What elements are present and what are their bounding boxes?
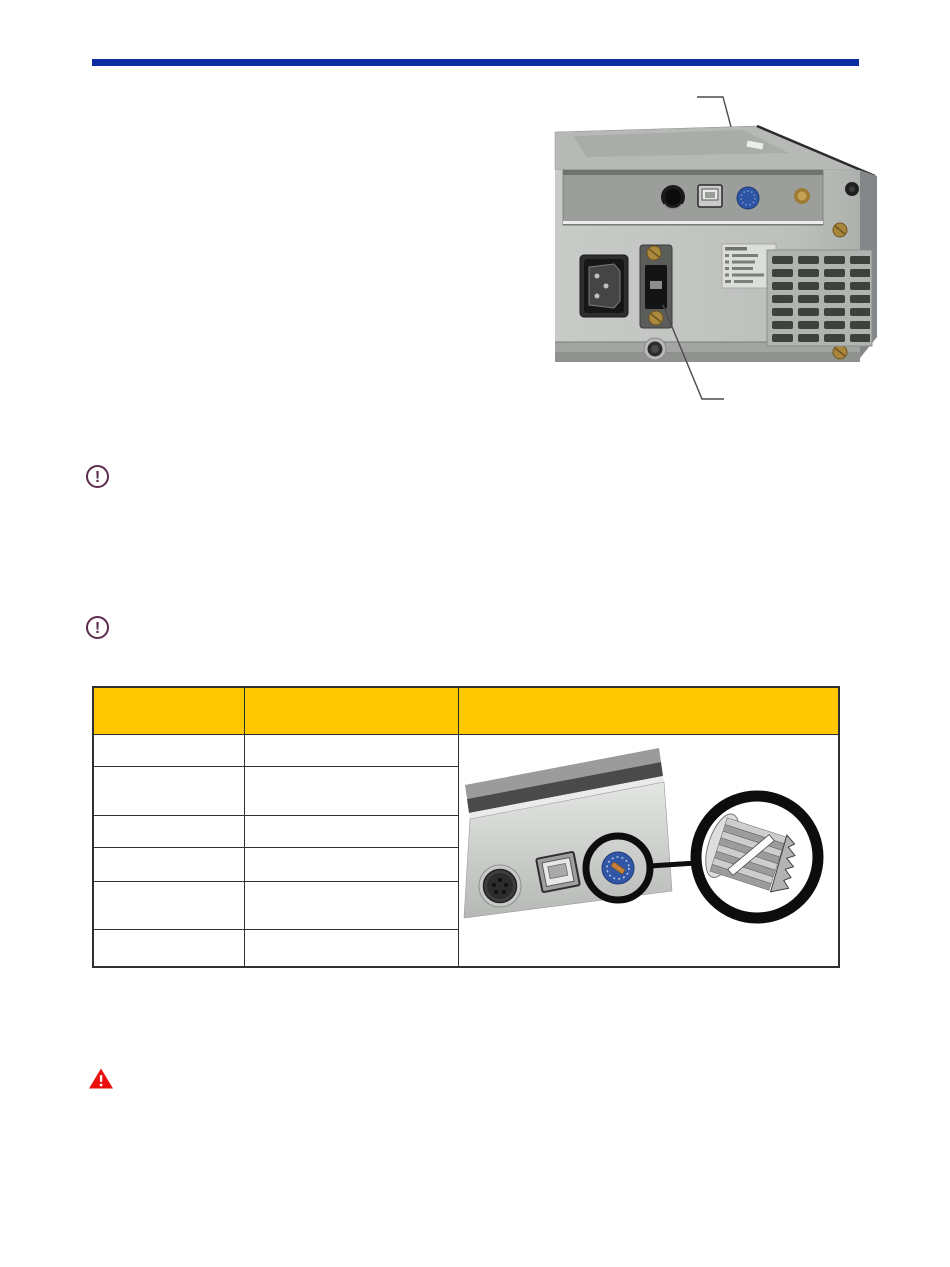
table-cell xyxy=(245,816,459,848)
table-cell xyxy=(94,767,245,816)
note-icon: ! xyxy=(86,616,109,639)
din-connector-icon xyxy=(661,185,685,209)
table-cell xyxy=(245,848,459,882)
table-header-cell xyxy=(94,688,245,735)
rotary-switch-icon xyxy=(602,852,634,884)
table-cell xyxy=(94,848,245,882)
vent-grille xyxy=(767,250,872,346)
table-cell xyxy=(245,767,459,816)
usb-port-icon xyxy=(698,185,722,207)
note-icon: ! xyxy=(86,465,109,488)
switch-detail-image-cell xyxy=(459,735,838,966)
manual-page: ! ! xyxy=(0,0,950,1267)
note-glyph: ! xyxy=(95,469,100,486)
din-connector-icon xyxy=(479,865,521,907)
table-header-cell xyxy=(459,688,838,735)
table-cell xyxy=(245,735,459,767)
header-rule xyxy=(92,59,859,66)
table-cell xyxy=(94,816,245,848)
connector-recess xyxy=(563,170,823,226)
note-glyph: ! xyxy=(95,620,100,637)
magnifier-link-line xyxy=(650,863,696,866)
table-cell xyxy=(245,882,459,930)
rotary-switch-detail-figure xyxy=(459,735,838,963)
table-cell xyxy=(94,735,245,767)
warning-triangle-icon xyxy=(88,1067,114,1090)
table-cell xyxy=(94,930,245,966)
table-cell xyxy=(245,930,459,966)
rotary-switch-icon xyxy=(737,187,759,209)
rear-panel-photo xyxy=(545,90,885,405)
table-cell xyxy=(94,882,245,930)
switch-settings-table xyxy=(92,686,840,968)
usb-port-icon xyxy=(536,852,580,893)
power-inlet xyxy=(580,255,628,317)
aux-round-connector xyxy=(644,338,666,360)
table-header-cell xyxy=(245,688,459,735)
